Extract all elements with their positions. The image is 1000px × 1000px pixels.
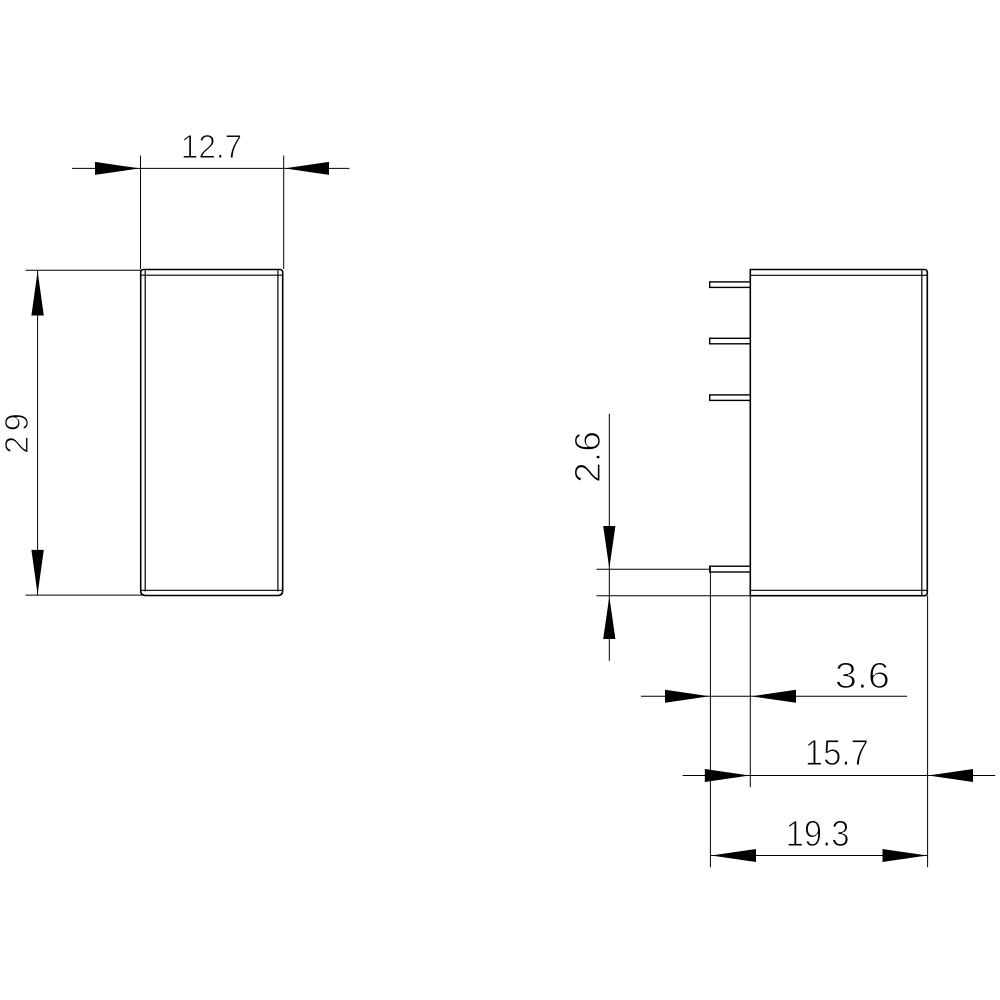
svg-text:15.7: 15.7 — [805, 732, 869, 773]
svg-text:12.7: 12.7 — [181, 128, 243, 165]
svg-text:3.6: 3.6 — [835, 655, 890, 696]
svg-text:19.3: 19.3 — [786, 813, 850, 854]
svg-text:2.6: 2.6 — [567, 431, 608, 483]
